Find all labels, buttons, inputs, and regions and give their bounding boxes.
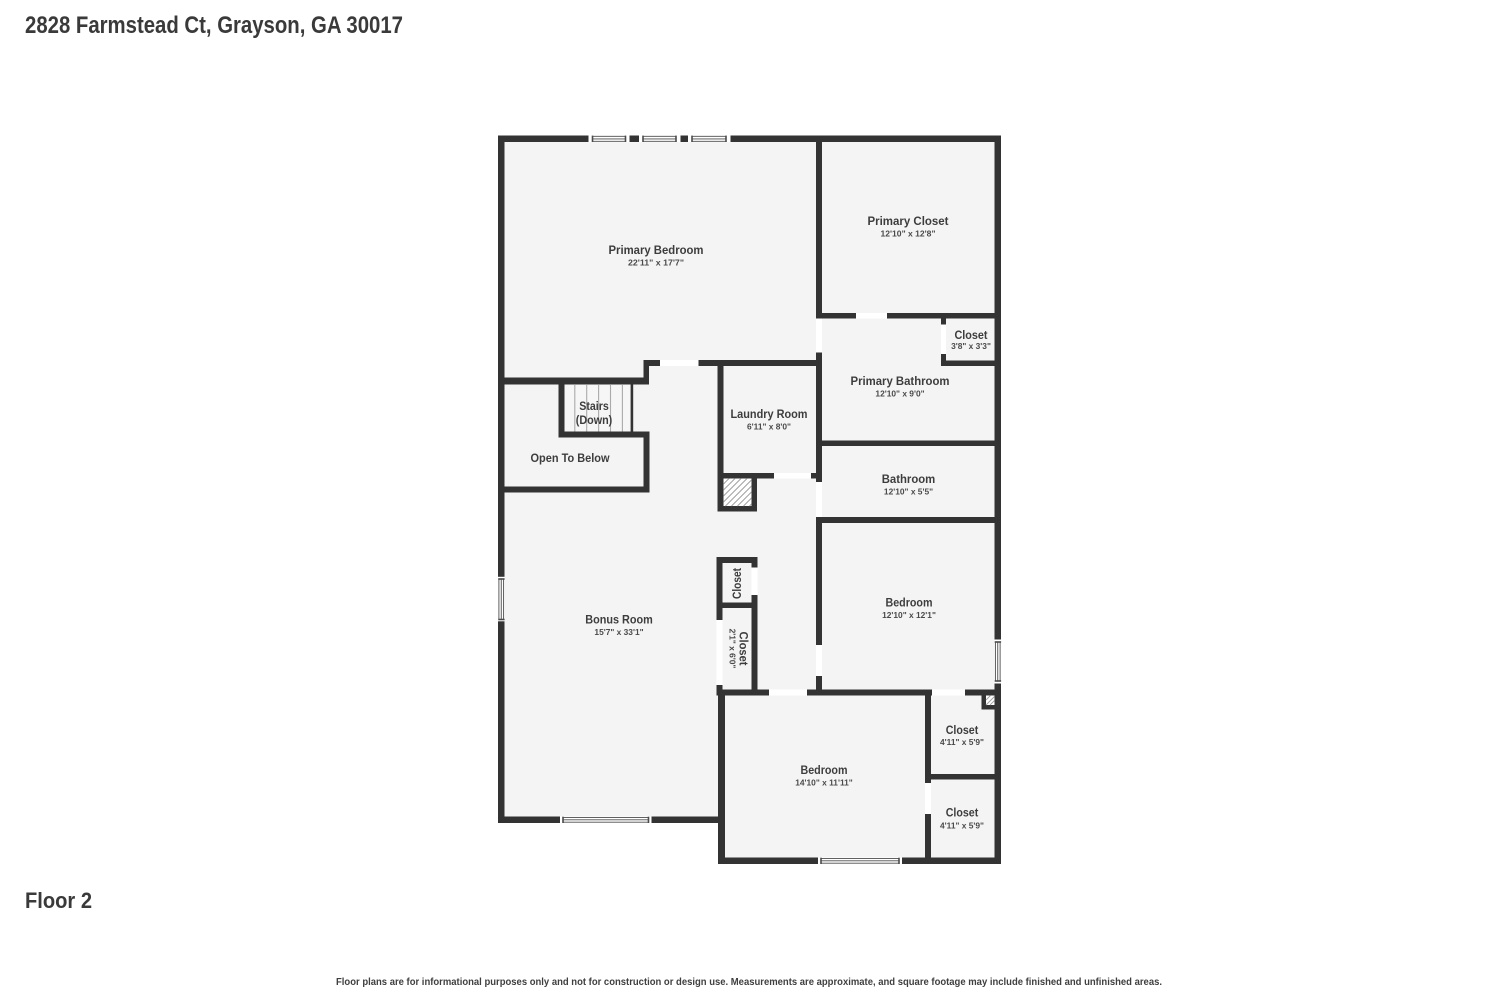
svg-text:Floor 2: Floor 2 (25, 888, 92, 913)
svg-text:Primary Bathroom: Primary Bathroom (851, 374, 950, 388)
svg-text:Bonus Room: Bonus Room (585, 612, 653, 626)
svg-text:Bathroom: Bathroom (882, 472, 936, 486)
svg-text:Closet: Closet (737, 632, 751, 666)
svg-text:12'10" x 9'0": 12'10" x 9'0" (875, 389, 924, 399)
svg-text:Bedroom: Bedroom (801, 763, 848, 777)
svg-text:3'8" x 3'3": 3'8" x 3'3" (951, 341, 991, 351)
svg-text:Bedroom: Bedroom (886, 596, 933, 610)
svg-text:12'10" x 5'5": 12'10" x 5'5" (884, 487, 933, 497)
svg-text:Open To Below: Open To Below (531, 451, 610, 465)
svg-text:Closet: Closet (946, 723, 979, 737)
svg-text:Primary Closet: Primary Closet (868, 214, 949, 228)
svg-text:Closet: Closet (730, 568, 744, 599)
svg-text:2828 Farmstead Ct, Grayson, GA: 2828 Farmstead Ct, Grayson, GA 30017 (25, 12, 403, 39)
svg-text:2'1" x 6'0": 2'1" x 6'0" (728, 629, 738, 669)
svg-text:12'10" x 12'8": 12'10" x 12'8" (881, 229, 936, 239)
svg-text:Primary Bedroom: Primary Bedroom (609, 243, 704, 257)
svg-text:4'11" x 5'9": 4'11" x 5'9" (940, 737, 984, 747)
svg-text:6'11" x 8'0": 6'11" x 8'0" (747, 422, 791, 432)
svg-text:Stairs: Stairs (579, 399, 609, 413)
svg-text:(Down): (Down) (576, 413, 613, 427)
svg-text:22'11" x 17'7": 22'11" x 17'7" (628, 258, 684, 268)
svg-text:Laundry Room: Laundry Room (731, 407, 808, 421)
svg-text:14'10" x 11'11": 14'10" x 11'11" (795, 778, 853, 788)
svg-text:Closet: Closet (946, 806, 979, 820)
svg-text:Floor plans are for informatio: Floor plans are for informational purpos… (336, 977, 1162, 988)
svg-text:12'10" x 12'1": 12'10" x 12'1" (882, 610, 936, 620)
svg-text:4'11" x 5'9": 4'11" x 5'9" (940, 820, 984, 830)
svg-text:15'7" x 33'1": 15'7" x 33'1" (594, 627, 643, 637)
